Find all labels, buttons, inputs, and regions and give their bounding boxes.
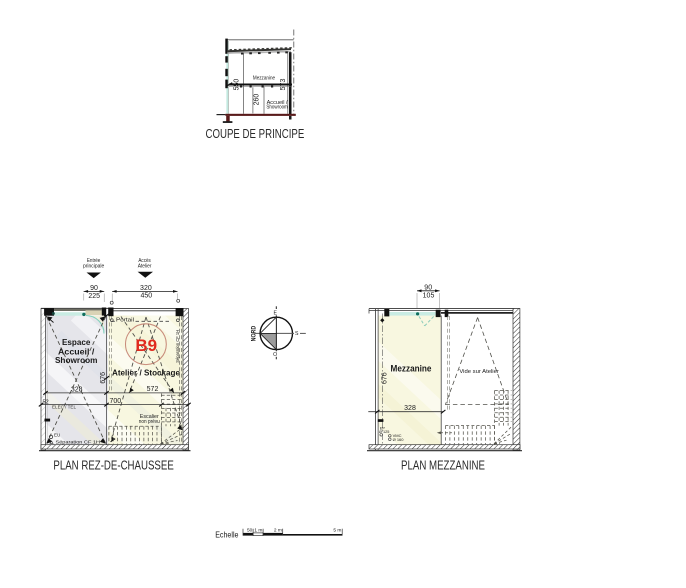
svg-text:Séparation CF 1H: Séparation CF 1H <box>175 329 181 362</box>
svg-text:O: O <box>273 352 277 358</box>
svg-text:328: 328 <box>404 405 416 412</box>
svg-text:573: 573 <box>280 79 287 91</box>
svg-text:Ø 125: Ø 125 <box>379 430 389 434</box>
svg-text:Ø 160: Ø 160 <box>393 437 405 442</box>
svg-text:90: 90 <box>424 284 432 291</box>
svg-text:52: 52 <box>43 400 49 406</box>
svg-text:NORD: NORD <box>251 325 258 341</box>
svg-text:Séparation CF 1H: Séparation CF 1H <box>56 439 101 445</box>
svg-text:S: S <box>295 331 299 337</box>
svg-text:B9: B9 <box>135 336 157 355</box>
svg-text:5 m: 5 m <box>333 527 341 533</box>
svg-text:ELEC / TEL: ELEC / TEL <box>52 405 77 410</box>
svg-text:90: 90 <box>90 285 98 292</box>
svg-text:E: E <box>273 310 277 316</box>
svg-text:Atelier / Stockage: Atelier / Stockage <box>112 368 180 378</box>
svg-text:principale: principale <box>83 264 105 270</box>
svg-text:COUPE DE PRINCIPE: COUPE DE PRINCIPE <box>206 127 305 141</box>
svg-text:Showroom: Showroom <box>266 104 288 110</box>
svg-text:Vide sur Atelier: Vide sur Atelier <box>459 369 499 375</box>
svg-text:1 m: 1 m <box>254 527 262 533</box>
svg-text:572: 572 <box>147 386 159 393</box>
svg-text:Espace: Espace <box>62 337 91 347</box>
svg-text:676: 676 <box>382 372 389 384</box>
svg-text:non prévu: non prévu <box>139 419 160 425</box>
svg-text:Atelier: Atelier <box>138 264 152 270</box>
svg-text:676: 676 <box>100 372 107 384</box>
svg-text:2 m: 2 m <box>274 527 282 533</box>
svg-text:Mezzanine: Mezzanine <box>391 363 432 373</box>
svg-text:EU: EU <box>54 432 60 437</box>
svg-text:50: 50 <box>247 527 253 533</box>
svg-text:320: 320 <box>140 285 152 292</box>
svg-text:550: 550 <box>234 79 241 91</box>
svg-text:Echelle: Echelle <box>215 529 239 539</box>
svg-text:260: 260 <box>254 94 261 106</box>
svg-text:225: 225 <box>88 293 100 300</box>
svg-text:328: 328 <box>71 387 83 394</box>
svg-text:PLAN REZ-DE-CHAUSSEE: PLAN REZ-DE-CHAUSSEE <box>53 458 173 472</box>
svg-text:PLAN MEZZANINE: PLAN MEZZANINE <box>401 458 485 472</box>
svg-text:450: 450 <box>140 293 152 300</box>
svg-text:Showroom: Showroom <box>55 355 98 365</box>
svg-text:Mezzanine: Mezzanine <box>253 76 275 82</box>
svg-text:700: 700 <box>109 398 121 405</box>
svg-text:105: 105 <box>423 292 435 299</box>
